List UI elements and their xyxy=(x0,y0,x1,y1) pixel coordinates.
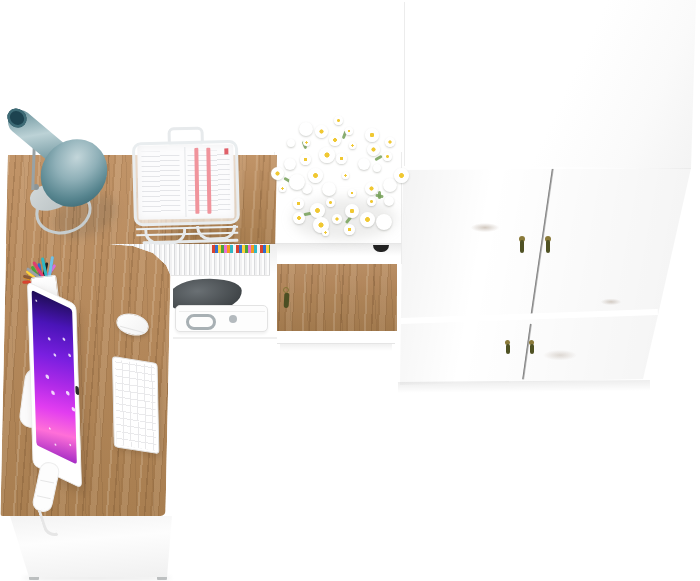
daisy xyxy=(394,168,409,183)
paper-red-mark xyxy=(224,148,228,154)
sparkle xyxy=(35,299,36,301)
daisy xyxy=(345,127,353,135)
sparkle xyxy=(63,337,65,340)
briefcase-seam xyxy=(179,311,265,312)
daisy xyxy=(367,143,380,156)
daisy xyxy=(342,172,349,179)
daisy xyxy=(373,164,381,172)
daisy xyxy=(319,147,335,163)
daisy xyxy=(344,224,355,235)
daisy xyxy=(299,122,313,136)
sparkle xyxy=(68,353,70,356)
sparkle xyxy=(48,337,50,340)
daisy xyxy=(367,197,376,206)
daisy xyxy=(322,182,336,196)
desk xyxy=(0,0,700,581)
paper-divider xyxy=(184,147,186,217)
daisy xyxy=(349,142,356,149)
monitor xyxy=(27,281,82,489)
sparkle xyxy=(66,390,69,395)
daisy-bouquet xyxy=(266,92,411,247)
briefcase-handle xyxy=(186,314,216,330)
daisy xyxy=(345,204,359,218)
daisy xyxy=(315,125,328,138)
furniture-render xyxy=(0,0,700,581)
daisy xyxy=(334,116,343,125)
screen-sparkles xyxy=(32,290,77,465)
daisy xyxy=(271,167,284,180)
daisy xyxy=(310,203,325,218)
daisy xyxy=(332,214,342,224)
paper-text-left xyxy=(141,151,180,214)
briefcase-latch xyxy=(229,315,237,323)
daisy xyxy=(348,189,356,197)
daisy xyxy=(383,178,397,192)
sparkle xyxy=(54,353,56,356)
briefcase xyxy=(175,305,268,332)
daisy xyxy=(358,158,370,170)
daisy xyxy=(385,137,395,147)
leaf xyxy=(375,194,383,198)
sparkle xyxy=(55,443,56,445)
keyboard xyxy=(112,356,159,454)
daisy xyxy=(300,154,311,165)
monitor-screen xyxy=(32,290,77,465)
daisy xyxy=(360,212,375,227)
daisy xyxy=(308,168,323,183)
daisy xyxy=(383,152,392,161)
sparkle xyxy=(69,444,70,446)
daisy xyxy=(326,198,335,207)
sparkle xyxy=(72,406,75,411)
tray-papers xyxy=(137,144,234,220)
daisy xyxy=(287,139,295,147)
sparkle xyxy=(49,427,50,429)
daisy xyxy=(322,229,329,236)
daisy xyxy=(365,128,379,142)
daisy xyxy=(336,153,347,164)
document-tray xyxy=(131,126,244,247)
magazine-spines xyxy=(212,245,270,253)
sparkle xyxy=(51,390,54,395)
daisy xyxy=(284,158,296,170)
daisy xyxy=(384,196,394,206)
daisy xyxy=(376,214,392,230)
daisy xyxy=(293,212,305,224)
daisy xyxy=(279,185,286,192)
sparkle xyxy=(45,374,48,379)
daisy xyxy=(293,198,304,209)
keyboard-keys xyxy=(115,359,156,450)
daisy xyxy=(303,139,310,146)
daisy xyxy=(289,174,305,190)
monitor-port xyxy=(75,385,79,395)
daisy xyxy=(329,134,341,146)
